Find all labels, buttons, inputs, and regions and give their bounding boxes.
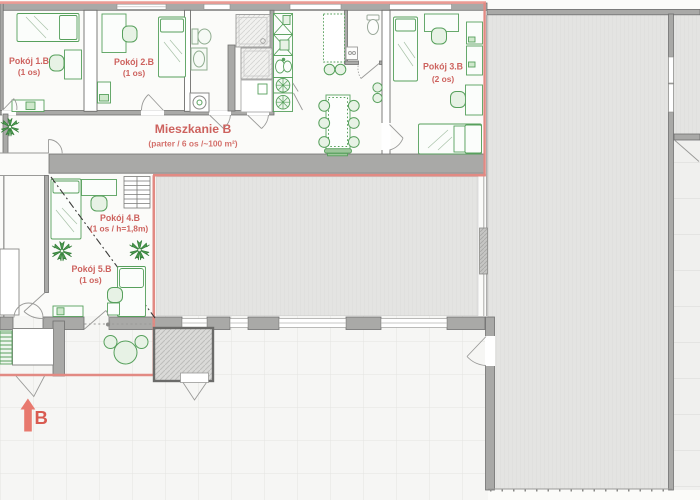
svg-text:(1 os / h=1,8m): (1 os / h=1,8m) [90,224,149,234]
svg-text:Mieszkanie B: Mieszkanie B [155,122,232,136]
svg-text:(1 os): (1 os) [18,67,41,77]
svg-text:(1 os): (1 os) [123,68,146,78]
svg-text:B: B [35,407,48,428]
svg-text:Pokój 5.B: Pokój 5.B [71,264,111,274]
svg-text:Pokój 1.B: Pokój 1.B [9,56,49,66]
svg-text:Pokój 2.B: Pokój 2.B [114,57,154,67]
svg-text:(2 os): (2 os) [432,74,455,84]
svg-text:Pokój 4.B: Pokój 4.B [100,213,140,223]
svg-text:(parter / 6 os /~100 m²): (parter / 6 os /~100 m²) [148,139,237,149]
svg-text:(1 os): (1 os) [79,275,102,285]
svg-text:Pokój 3.B: Pokój 3.B [423,62,463,72]
